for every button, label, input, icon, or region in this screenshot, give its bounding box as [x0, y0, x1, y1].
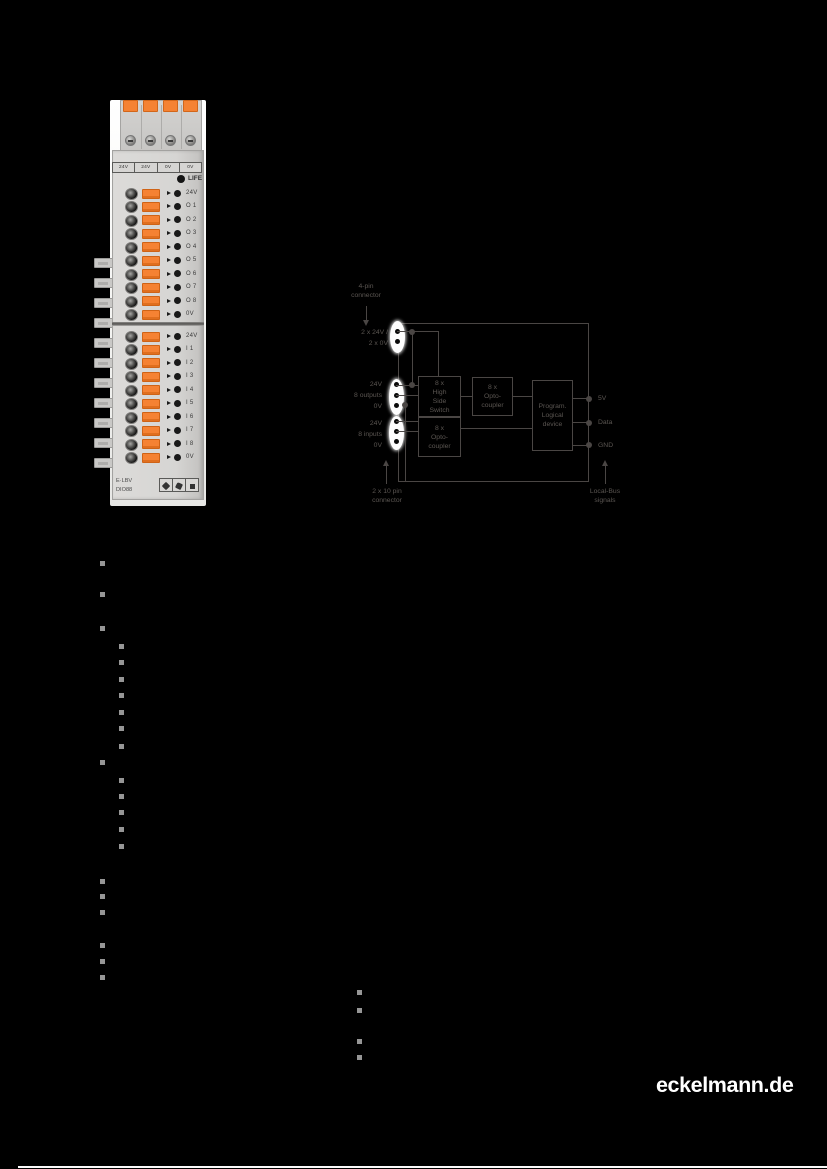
brand-logo: eckelmann.de — [656, 1073, 793, 1098]
bullet-marker — [119, 827, 124, 832]
channel-led-icon — [174, 216, 181, 223]
bullet-marker — [119, 744, 124, 749]
box-opto-coupler-top: 8 x Opto- coupler — [472, 377, 513, 416]
channel-led-icon — [174, 333, 181, 340]
channel-led-icon — [174, 359, 181, 366]
terminal-label: I 6 — [186, 414, 194, 420]
wire — [396, 385, 418, 386]
bullet-marker — [119, 810, 124, 815]
channel-led-icon — [174, 257, 181, 264]
pin-dot-icon — [394, 403, 399, 408]
clamp-lever-icon — [142, 310, 160, 320]
bullet-marker — [100, 943, 105, 948]
connector-separator — [181, 105, 182, 149]
terminal-label: I 5 — [186, 400, 194, 406]
bullet-marker — [100, 626, 105, 631]
pin-dot-icon — [394, 439, 399, 444]
bullet-marker — [119, 844, 124, 849]
terminal-row: I 6 — [112, 411, 204, 424]
terminal-label: I 8 — [186, 441, 194, 447]
clamp-lever-icon — [142, 215, 160, 225]
clamp-lever-icon — [142, 242, 160, 252]
bullet-marker — [100, 959, 105, 964]
arrow-line — [366, 306, 367, 321]
clamp-lever-icon — [142, 202, 160, 212]
bullet-marker — [119, 644, 124, 649]
bullet-marker — [119, 710, 124, 715]
terminal-hole-icon — [125, 296, 138, 308]
clamp-icon — [163, 100, 178, 112]
clamp-lever-icon — [142, 229, 160, 239]
bullet-marker — [100, 561, 105, 566]
channel-led-icon — [174, 297, 181, 304]
row-arrow-icon — [167, 428, 171, 432]
box-opto-coupler-bottom: 8 x Opto- coupler — [418, 417, 461, 457]
terminal-label: I 4 — [186, 387, 194, 393]
pin-data-label: Data — [598, 418, 612, 427]
terminal-label: I 1 — [186, 346, 194, 352]
clamp-lever-icon — [142, 426, 160, 436]
clamp-lever-icon — [142, 256, 160, 266]
supply-label: 2 x 24V / 2 x 0V — [334, 327, 388, 349]
row-arrow-icon — [167, 218, 171, 222]
terminal-label: 0V — [186, 454, 194, 460]
clamp-lever-icon — [142, 399, 160, 409]
channel-led-icon — [174, 400, 181, 407]
power-label-strip: 24V24V0V0V — [112, 162, 202, 173]
power-label-cell: 0V — [180, 163, 201, 172]
terminal-row: I 4 — [112, 384, 204, 397]
channel-led-icon — [174, 270, 181, 277]
bullet-marker — [100, 879, 105, 884]
pin-dot-icon — [395, 339, 400, 344]
bullet-marker — [100, 894, 105, 899]
wire — [412, 331, 413, 385]
local-bus-label: Local-Bus signals — [574, 487, 636, 505]
pin-gnd-label: GND — [598, 441, 613, 450]
product-label-line2: DIO88 — [116, 486, 132, 495]
terminal-label: O 6 — [186, 271, 197, 277]
terminal-label: O 3 — [186, 230, 197, 236]
terminal-hole-icon — [125, 242, 138, 254]
row-arrow-icon — [167, 258, 171, 262]
node-dot-icon — [586, 420, 592, 426]
bullet-marker — [119, 778, 124, 783]
terminal-row: I 5 — [112, 397, 204, 410]
terminal-hole-icon — [125, 412, 138, 424]
power-label-cell: 24V — [113, 163, 135, 172]
bullet-marker — [119, 794, 124, 799]
screw-terminal-icon — [185, 135, 196, 146]
row-arrow-icon — [167, 374, 171, 378]
terminal-row: O 6 — [112, 268, 204, 281]
clamp-icon — [123, 100, 138, 112]
channel-led-icon — [174, 311, 181, 318]
terminal-hole-icon — [125, 358, 138, 370]
terminal-label: I 2 — [186, 360, 194, 366]
channel-led-icon — [174, 440, 181, 447]
channel-led-icon — [174, 203, 181, 210]
terminal-row: O 7 — [112, 281, 204, 294]
logo-cell — [173, 479, 186, 491]
channel-led-icon — [174, 284, 181, 291]
connector-separator — [161, 105, 162, 149]
wire — [396, 421, 418, 422]
product-label: E·LBV DIO88 — [116, 477, 132, 495]
row-arrow-icon — [167, 285, 171, 289]
clamp-lever-icon — [142, 269, 160, 279]
bullet-marker — [100, 760, 105, 765]
row-arrow-icon — [167, 245, 171, 249]
screw-terminal-icon — [165, 135, 176, 146]
terminal-row: 0V — [112, 308, 204, 321]
module-photo: 24V24V0V0V LIFE 24VO 1O 2O 3O 4O 5O 6O 7… — [98, 100, 206, 506]
row-arrow-icon — [167, 204, 171, 208]
terminal-label: O 5 — [186, 257, 197, 263]
clamp-lever-icon — [142, 372, 160, 382]
node-dot-icon — [586, 396, 592, 402]
bullet-marker — [119, 677, 124, 682]
row-arrow-icon — [167, 388, 171, 392]
channel-led-icon — [174, 454, 181, 461]
box-high-side-switch: 8 x High Side Switch — [418, 376, 461, 417]
row-arrow-icon — [167, 272, 171, 276]
terminal-row: I 8 — [112, 438, 204, 451]
terminal-row: O 4 — [112, 241, 204, 254]
diamond-glyph-icon — [162, 481, 170, 489]
wire — [461, 396, 472, 397]
bullet-marker — [119, 726, 124, 731]
clamp-lever-icon — [142, 358, 160, 368]
bullet-marker — [100, 592, 105, 597]
row-arrow-icon — [167, 442, 171, 446]
terminal-row: O 3 — [112, 227, 204, 240]
clamp-lever-icon — [142, 385, 160, 395]
logo-cell — [186, 479, 198, 491]
outputs-label: 24V 8 outputs 0V — [330, 379, 382, 412]
terminal-label: I 3 — [186, 373, 194, 379]
connector-separator — [141, 105, 142, 149]
terminal-row: 24V — [112, 330, 204, 343]
terminal-hole-icon — [125, 425, 138, 437]
terminal-row: 24V — [112, 187, 204, 200]
wire — [513, 396, 532, 397]
life-led-row: LIFE — [98, 174, 206, 184]
channel-led-icon — [174, 386, 181, 393]
logo-cell — [160, 479, 173, 491]
box-programmable-logic: Program. Logical device — [532, 380, 573, 451]
wire — [397, 331, 438, 332]
row-arrow-icon — [167, 312, 171, 316]
channel-led-icon — [174, 373, 181, 380]
terminal-row: O 5 — [112, 254, 204, 267]
terminal-row: O 1 — [112, 200, 204, 213]
clamp-lever-icon — [142, 345, 160, 355]
terminal-label: O 2 — [186, 217, 197, 223]
block-divider — [112, 322, 204, 326]
terminal-hole-icon — [125, 215, 138, 227]
terminal-row: I 2 — [112, 357, 204, 370]
row-arrow-icon — [167, 334, 171, 338]
terminal-hole-icon — [125, 201, 138, 213]
terminal-label: O 7 — [186, 284, 197, 290]
terminal-label: O 8 — [186, 298, 197, 304]
clamp-icon — [143, 100, 158, 112]
clamp-lever-icon — [142, 332, 160, 342]
arrow-line — [605, 466, 606, 484]
clamp-lever-icon — [142, 453, 160, 463]
wire — [396, 431, 418, 432]
channel-led-icon — [174, 413, 181, 420]
manufacturer-logo-icon — [159, 478, 199, 492]
terminal-row: I 7 — [112, 424, 204, 437]
channel-led-icon — [174, 427, 181, 434]
footer-rule — [18, 1166, 827, 1168]
screw-terminal-icon — [145, 135, 156, 146]
terminal-hole-icon — [125, 439, 138, 451]
terminal-row: I 3 — [112, 370, 204, 383]
channel-led-icon — [174, 190, 181, 197]
bullet-marker — [119, 693, 124, 698]
terminal-hole-icon — [125, 282, 138, 294]
life-led-icon — [177, 175, 185, 183]
bullet-marker — [100, 910, 105, 915]
wire — [396, 395, 418, 396]
power-label-cell: 0V — [158, 163, 180, 172]
row-arrow-icon — [167, 231, 171, 235]
wire — [461, 428, 532, 429]
blob-glyph-icon — [175, 482, 183, 490]
top-connector-label: 4-pin connector — [338, 282, 394, 300]
pin-5v-label: 5V — [598, 394, 606, 403]
terminal-hole-icon — [125, 269, 138, 281]
product-label-line1: E·LBV — [116, 477, 132, 486]
row-arrow-icon — [167, 361, 171, 365]
channel-led-icon — [174, 243, 181, 250]
terminal-hole-icon — [125, 309, 138, 321]
row-arrow-icon — [167, 401, 171, 405]
clamp-lever-icon — [142, 412, 160, 422]
terminal-label: 24V — [186, 190, 198, 196]
terminal-hole-icon — [125, 331, 138, 343]
arrow-down-icon — [363, 320, 369, 326]
terminal-hole-icon — [125, 344, 138, 356]
row-arrow-icon — [167, 347, 171, 351]
terminal-hole-icon — [125, 452, 138, 464]
bullet-marker — [357, 990, 362, 995]
terminal-label: O 1 — [186, 203, 197, 209]
clamp-lever-icon — [142, 439, 160, 449]
bullet-marker — [119, 660, 124, 665]
row-arrow-icon — [167, 415, 171, 419]
row-arrow-icon — [167, 299, 171, 303]
row-arrow-icon — [167, 191, 171, 195]
node-dot-icon — [409, 329, 415, 335]
channel-led-icon — [174, 346, 181, 353]
terminal-row: I 1 — [112, 343, 204, 356]
connector-ellipse — [390, 321, 405, 353]
terminal-hole-icon — [125, 188, 138, 200]
bullet-marker — [357, 1008, 362, 1013]
node-dot-icon — [586, 442, 592, 448]
terminal-hole-icon — [125, 385, 138, 397]
arrow-line — [386, 466, 387, 484]
datasheet-page: 24V24V0V0V LIFE 24VO 1O 2O 3O 4O 5O 6O 7… — [0, 0, 827, 1169]
screw-terminal-icon — [125, 135, 136, 146]
bottom-connector-label: 2 x 10 pin connector — [356, 487, 418, 505]
terminal-row: 0V — [112, 451, 204, 464]
clamp-lever-icon — [142, 283, 160, 293]
block-diagram: 4-pin connector 2 x 24V / 2 x 0V 24V 8 o… — [330, 280, 642, 515]
clamp-lever-icon — [142, 296, 160, 306]
terminal-hole-icon — [125, 371, 138, 383]
terminal-hole-icon — [125, 228, 138, 240]
terminal-label: 24V — [186, 333, 198, 339]
clamp-icon — [183, 100, 198, 112]
terminal-hole-icon — [125, 255, 138, 267]
bullet-marker — [100, 975, 105, 980]
terminal-label: 0V — [186, 311, 194, 317]
wire — [405, 405, 406, 482]
power-label-cell: 24V — [135, 163, 157, 172]
life-led-label: LIFE — [188, 175, 202, 182]
bullet-marker — [357, 1039, 362, 1044]
channel-led-icon — [174, 230, 181, 237]
power-connector — [120, 100, 202, 152]
terminal-label: I 7 — [186, 427, 194, 433]
square-glyph-icon — [190, 484, 195, 489]
terminal-row: O 2 — [112, 214, 204, 227]
terminal-hole-icon — [125, 398, 138, 410]
bullet-marker — [357, 1055, 362, 1060]
wire — [438, 331, 439, 377]
clamp-lever-icon — [142, 189, 160, 199]
row-arrow-icon — [167, 455, 171, 459]
terminal-label: O 4 — [186, 244, 197, 250]
terminal-row: O 8 — [112, 295, 204, 308]
inputs-label: 24V 8 inputs 0V — [330, 418, 382, 451]
